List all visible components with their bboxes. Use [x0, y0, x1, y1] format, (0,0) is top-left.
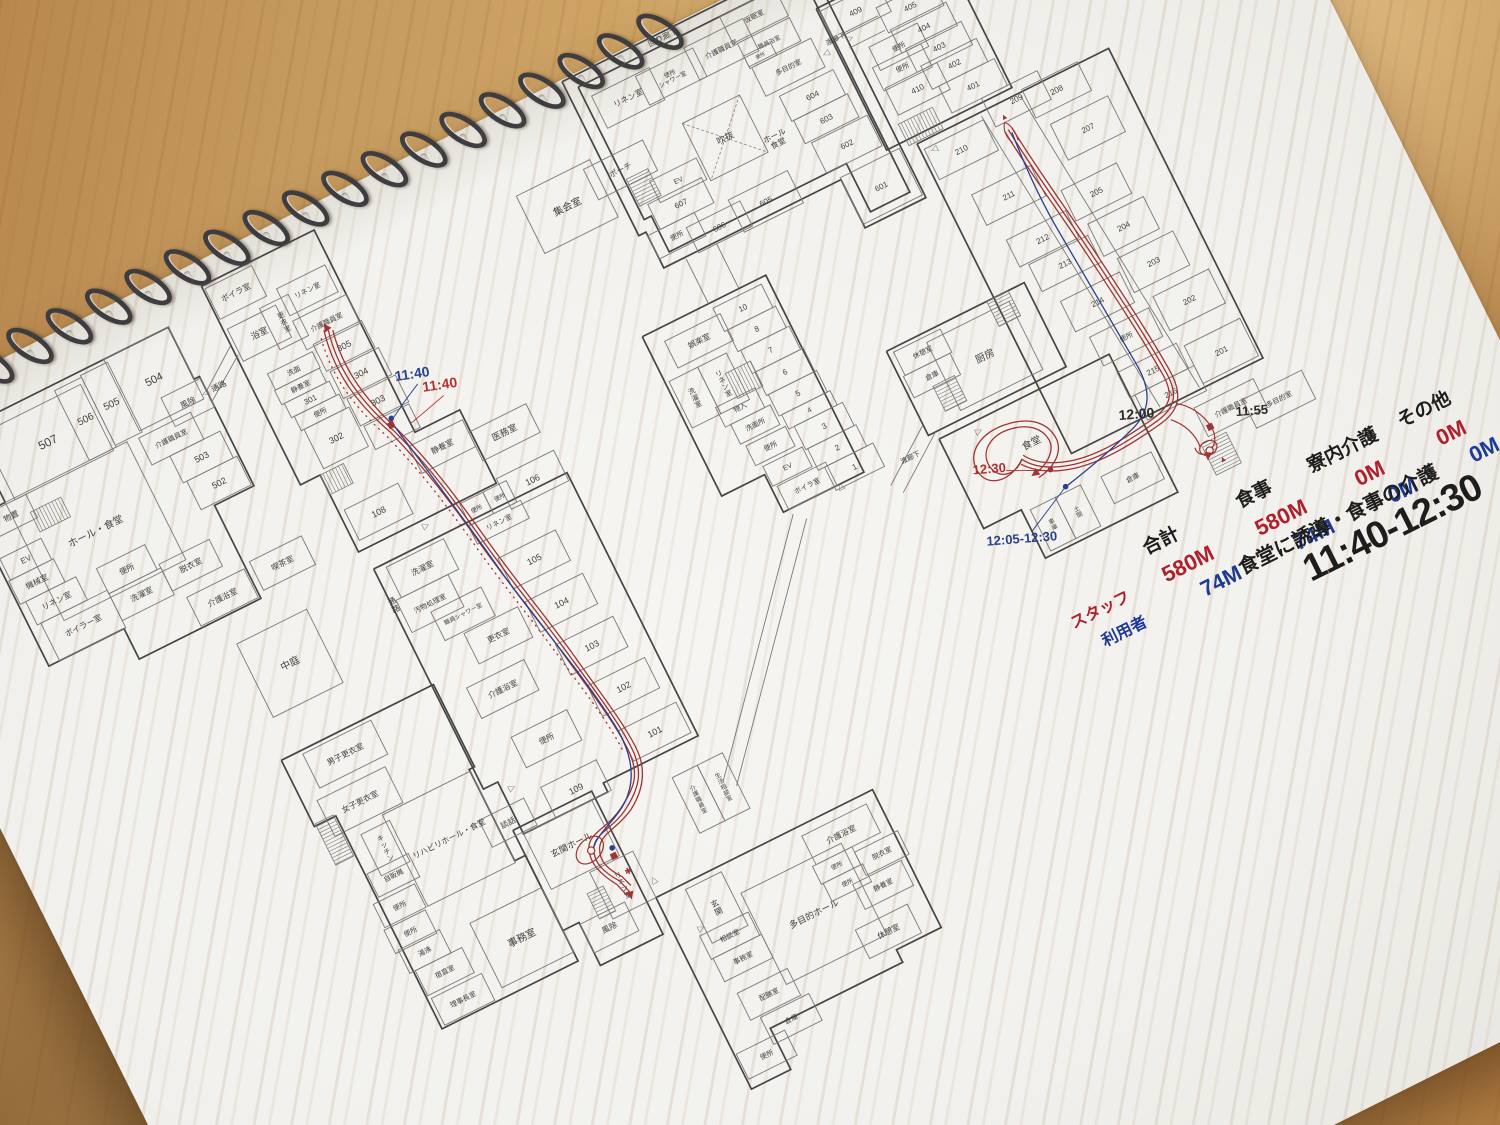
time-annotation: 12:05-12:30 [986, 528, 1058, 549]
stair-step [332, 849, 350, 858]
stair-step [49, 503, 59, 523]
room-label: 10 [737, 302, 749, 314]
room-label: 401 [965, 79, 981, 93]
room-label: 204 [1116, 219, 1132, 233]
room-label: ホール・食堂 [66, 512, 125, 550]
building-outline [513, 791, 663, 973]
stair-step [320, 824, 338, 833]
trace-arrowhead [1204, 452, 1212, 460]
movement-trace [964, 406, 1068, 500]
room-label: 静養室 [872, 876, 895, 893]
room-label: 506 [76, 411, 96, 428]
room-label: 212 [1035, 232, 1051, 246]
stair-step [331, 846, 349, 855]
direction-triangle: ▷ [420, 519, 431, 531]
building-outline [816, 0, 1012, 150]
desk-photo: 507506505504風除介護職員室503502ホール・食堂物置EV機械室リネ… [0, 0, 1500, 1125]
stair-step [593, 898, 609, 906]
room-label: 喫茶室 [269, 553, 295, 573]
room-label: 便所 [117, 561, 136, 577]
room-label: リネン室 [484, 512, 513, 533]
room-label: 便所 [312, 405, 329, 419]
room-label: 4 [807, 407, 814, 415]
room-label: 機械室 [24, 572, 50, 592]
stair-step [328, 840, 346, 849]
stair-step [741, 366, 753, 391]
room-label: 605 [758, 194, 774, 208]
room-label: 静養室 [289, 378, 312, 395]
room-label: 502 [210, 475, 228, 491]
stair-step [326, 836, 344, 845]
room-label: 105 [525, 552, 543, 568]
stair-step [598, 907, 614, 915]
stair-step [588, 889, 604, 897]
stair-step [332, 469, 342, 489]
room-label: ボイラ室 [219, 281, 252, 304]
room-label: 402 [946, 57, 962, 71]
room-label: 便所 [493, 491, 507, 504]
time-annotation: 12:00 [1118, 404, 1155, 423]
room-label: 215 [1145, 363, 1161, 377]
room-label: 303 [369, 393, 387, 409]
room-label: 相談室 [718, 927, 741, 944]
room-label: 102 [615, 679, 633, 695]
room-label: 休憩室 [911, 344, 934, 361]
direction-triangle: ▷ [506, 781, 517, 793]
room-label: 601 [873, 179, 889, 193]
stair-step [335, 467, 345, 487]
room-label: 洗濯室 [409, 558, 435, 578]
room-label: 仮眠室 [743, 7, 766, 24]
building-outline [578, 0, 910, 304]
stair-step [1215, 460, 1240, 472]
stair-step [338, 466, 348, 486]
stair-step [39, 508, 49, 528]
stair-step [342, 464, 352, 484]
room-label: 浴室 [249, 324, 270, 342]
room-label: EV [782, 462, 794, 473]
room-label: 201 [1214, 344, 1230, 358]
room-label: 物入 [732, 400, 749, 414]
direction-triangle: ◁ [821, 47, 832, 59]
room-label: 205 [1089, 185, 1105, 199]
stair-step [324, 833, 342, 842]
room-label: 1 [851, 462, 859, 472]
room-label: 103 [583, 638, 601, 654]
room-label: 談話 [499, 815, 518, 831]
corridor-wall [1021, 83, 1200, 401]
room-label: 男子更衣室 [325, 741, 365, 768]
room-label: 8 [753, 324, 761, 334]
corridor-label: 通路 [386, 595, 401, 615]
room-label: 風除 [600, 919, 619, 935]
room-label: 医務室 [490, 421, 519, 443]
room-label: 203 [1146, 255, 1162, 269]
room-label: 玄関ホール [549, 829, 594, 859]
room-label: 405 [902, 0, 918, 14]
room-label: 介護浴室 [825, 823, 858, 846]
room-label: 脱衣室 [870, 844, 893, 861]
room-label: 風除 [178, 394, 197, 410]
room-label: 304 [352, 365, 370, 381]
room-label: 207 [1080, 121, 1096, 135]
room-label: 507 [36, 431, 60, 453]
room-label: 洗面 [286, 364, 303, 378]
room-label: 301 [303, 392, 319, 406]
building-outline [281, 682, 578, 1040]
room-label: 生活相談室 [714, 771, 734, 803]
annotation-leader [1006, 454, 1046, 486]
room-label: 便所 [758, 1047, 775, 1061]
room-label: 集会室 [551, 194, 584, 219]
direction-triangle: △ [648, 874, 659, 886]
stair-step [335, 855, 353, 864]
direction-triangle: ▷ [696, 922, 707, 934]
room-label: 玄関 [709, 897, 724, 917]
room-label: EV [673, 176, 685, 187]
room-label: 宿直室 [433, 963, 456, 980]
room-label: 介護職員室 [154, 427, 189, 451]
room-label: 便所 [537, 730, 556, 746]
marker-star: ✱ [623, 865, 634, 877]
room-label: 物置 [2, 508, 21, 524]
room-label: キッチン [376, 834, 395, 863]
room-label: 409 [848, 4, 864, 18]
marker-dot [1062, 483, 1070, 491]
room-label: ポーチ [608, 161, 633, 180]
direction-triangle: ◁ [929, 143, 940, 155]
room-label: 中庭 [278, 653, 302, 674]
stair-step [595, 901, 611, 909]
room-label: 更衣室 [276, 311, 292, 334]
time-annotation: 11:55 [1235, 402, 1269, 420]
room-label: 更衣室 [485, 625, 511, 645]
stair-step [318, 821, 336, 830]
room-label: ボイラー室 [63, 612, 103, 639]
stat-row-label-user: 利用者 [1099, 612, 1150, 650]
corridor-wall [842, 16, 878, 34]
room-label: 208 [1049, 83, 1065, 97]
room-label: 便所 [840, 876, 854, 889]
room-label: 504 [143, 370, 165, 389]
stat-column-header: 食事 [1232, 475, 1276, 513]
movement-trace [1171, 413, 1201, 453]
corridor-wall [717, 244, 739, 289]
room-label: 便所 [830, 859, 844, 872]
room-label: 6 [781, 367, 789, 377]
room-label: 603 [818, 112, 834, 126]
room-label: 静養室 [429, 437, 455, 457]
room-label: 女子更衣室 [340, 788, 380, 815]
stair-step [329, 843, 347, 852]
room-label: 211 [1001, 189, 1017, 203]
room-label: 休憩室 [875, 921, 901, 941]
room-label: 配膳室 [758, 986, 781, 1003]
room-label: 汚物処理室 [412, 592, 447, 616]
room-label: 職員浴室 [757, 33, 782, 51]
room-label: 介護浴室 [206, 586, 239, 609]
time-annotation: 12:30 [972, 460, 1006, 478]
room-label: 7 [767, 345, 775, 355]
room-label: 厨房 [973, 346, 997, 367]
stat-column-header: 合計 [1138, 522, 1182, 560]
room-label: 介護浴室 [486, 677, 519, 700]
room-label: 便所シャワー室 [655, 64, 688, 90]
room-label: 洗面所 [744, 416, 767, 433]
room-label: 210 [953, 143, 969, 157]
stair-step [45, 505, 55, 525]
corridor-label: 食堂 [1020, 432, 1044, 453]
corridor-wall [630, 514, 886, 781]
room-label: 倉庫 [783, 1012, 800, 1026]
room-label: 便所 [762, 439, 779, 453]
room-label: 洗濯室 [128, 584, 154, 604]
room-label: 202 [1181, 293, 1197, 307]
building-outline [656, 790, 968, 1089]
corridor-wall [644, 519, 900, 786]
corridor-label: 渡廊下 [899, 449, 922, 466]
notebook-page: 507506505504風除介護職員室503502ホール・食堂物置EV機械室リネ… [0, 0, 1500, 1125]
room-label: 倉庫 [1124, 471, 1141, 485]
movement-trace [380, 391, 662, 853]
direction-triangle: ▷ [844, 32, 855, 44]
room-label: 便所 [469, 503, 483, 516]
room-label: 606 [711, 220, 727, 234]
stair-step [321, 827, 339, 836]
stair-step [42, 506, 52, 526]
room-label: 倉庫 [924, 368, 941, 382]
room-label: 209 [1009, 92, 1025, 106]
room-label: 娯楽室 [686, 331, 712, 351]
corridor-wall [686, 259, 708, 304]
room-label: 便所 [669, 229, 686, 243]
room-label: 湯沸 [416, 944, 433, 958]
room-label: 101 [646, 724, 664, 740]
stair-step [590, 892, 606, 900]
stair-step [592, 895, 608, 903]
room-label: 事務室 [505, 925, 538, 950]
direction-triangle: ▷ [973, 425, 984, 437]
room-label: 108 [370, 504, 388, 520]
room-label: 事務室 [732, 949, 755, 966]
room-label: 多目的室 [1264, 389, 1293, 410]
stair-step [599, 911, 615, 919]
room-label: リネン室 [612, 86, 645, 109]
room-label: 介護職員室 [704, 37, 739, 61]
room-label: 介護職員室 [689, 784, 709, 816]
room-label: 403 [931, 40, 947, 54]
room-label: 104 [553, 595, 571, 611]
room-label: 便所 [402, 925, 419, 939]
marker-dot [608, 844, 616, 852]
room-label: リハビリホール・食堂 [411, 816, 487, 861]
stairs [898, 107, 943, 145]
stair-step [596, 904, 612, 912]
room-label: 土間 [1072, 504, 1084, 519]
room-label: 106 [524, 472, 542, 488]
room-label: 吹抜 [715, 129, 736, 147]
room-label: ボイラ室 [793, 476, 822, 497]
room-label: リネン室 [293, 280, 322, 301]
movement-trace [320, 292, 686, 906]
room-label: 多目的室 [774, 57, 803, 78]
movement-trace [324, 292, 688, 902]
building-outline [642, 275, 864, 533]
stair-step [52, 502, 62, 522]
room-label: 410 [910, 82, 926, 96]
room-label: 3 [820, 421, 828, 431]
corridor-wall [885, 432, 953, 493]
room-label: 503 [193, 449, 211, 465]
room-label: 自販機 [382, 867, 405, 884]
room-label: 607 [673, 197, 689, 211]
room-label: 便所 [391, 899, 408, 913]
room-label: 213 [1057, 256, 1073, 270]
room-label: 505 [102, 396, 122, 413]
stair-step [734, 369, 746, 394]
room-label: 604 [805, 88, 821, 102]
room-label: 302 [327, 430, 345, 446]
room-label: 109 [567, 781, 585, 797]
room-label: 洗濯室 [687, 386, 704, 410]
room-label: 602 [839, 137, 855, 151]
room-label: 5 [794, 388, 802, 398]
stair-step [334, 852, 352, 861]
room-label: 404 [916, 21, 932, 35]
marker-square [387, 421, 396, 430]
room-label: 理事長室 [449, 989, 478, 1010]
room-label: 脱衣室 [178, 555, 204, 575]
room-label: 2 [833, 442, 841, 452]
floorplan-svg: 507506505504風除介護職員室503502ホール・食堂物置EV機械室リネ… [0, 0, 1500, 1125]
stair-step [329, 471, 339, 491]
